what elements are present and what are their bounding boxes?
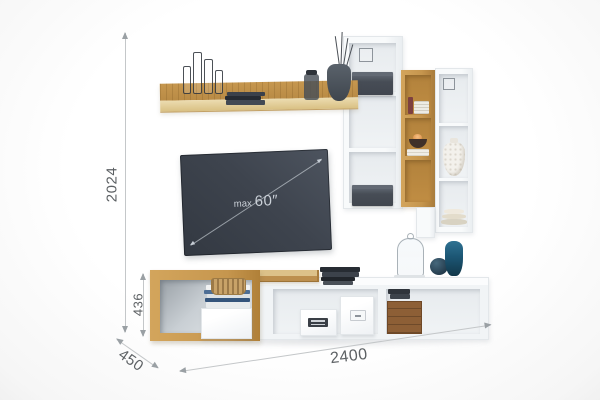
- glass-jar: [304, 74, 319, 100]
- wooden-crate: [387, 301, 422, 334]
- hanging-connector-panel: [416, 207, 435, 238]
- tv-max-text: max: [234, 198, 252, 210]
- vent-slot: [311, 324, 325, 326]
- shelf-unit-white-right: [435, 68, 473, 233]
- dimension-stand-height-label: 436: [131, 289, 146, 321]
- wire-tube: [193, 52, 202, 94]
- book: [390, 294, 410, 299]
- dimension-total-height-line: [125, 33, 126, 332]
- label-dash: [355, 315, 361, 317]
- plate-stack: [441, 209, 467, 225]
- arrow-down-right-icon: [151, 362, 160, 371]
- woven-basket: [211, 278, 246, 295]
- wire-tube: [215, 70, 223, 94]
- wire-candleholders: [183, 54, 223, 94]
- shelf-unit-oak: [401, 70, 435, 207]
- arrow-diagonal-icon: [317, 157, 323, 163]
- furniture-wall-unit-diagram: max60″: [0, 0, 600, 400]
- shelf-cell: [405, 160, 431, 202]
- dimension-total-height-label: 2024: [104, 161, 121, 209]
- label-holder: [350, 310, 366, 321]
- tall-blue-vase: [445, 241, 463, 276]
- arrow-down-icon: [140, 330, 146, 337]
- wire-tube: [204, 59, 213, 94]
- tv-screen: max60″: [180, 149, 332, 256]
- dark-book-stack: [225, 92, 265, 105]
- plate: [441, 219, 467, 225]
- vented-white-box: [300, 309, 337, 336]
- arrow-diagonal-icon: [189, 241, 195, 247]
- vase-neck: [450, 138, 458, 143]
- white-book-stack: [407, 149, 429, 156]
- crate-book-stack: [388, 289, 412, 299]
- cloche-base: [394, 275, 425, 278]
- storage-box: [352, 72, 393, 95]
- book: [323, 281, 353, 285]
- magazine-stack: [414, 101, 429, 114]
- dark-book-stack: [320, 267, 362, 285]
- tv-size-text: 60″: [254, 192, 278, 210]
- tv-size-label: max60″: [182, 190, 331, 214]
- arrow-up-icon: [140, 273, 146, 280]
- shelf-unit-white-left: [343, 36, 403, 209]
- white-storage-box: [201, 308, 252, 339]
- vent-slot: [311, 320, 325, 322]
- arrow-left-icon: [179, 367, 187, 374]
- glass-cloche: [397, 238, 424, 277]
- book: [226, 100, 265, 105]
- arrow-up-icon: [122, 32, 128, 39]
- vent-plate: [308, 318, 328, 327]
- label-white-box: [340, 296, 374, 335]
- red-book: [408, 97, 413, 114]
- wire-square-decor: [443, 78, 455, 90]
- wire-tube: [183, 66, 191, 94]
- glass-jar-lid: [306, 70, 317, 75]
- book: [206, 302, 250, 308]
- vase-with-branches: [327, 64, 351, 101]
- arrow-right-icon: [484, 321, 492, 328]
- storage-box: [352, 185, 393, 206]
- arrow-down-icon: [122, 326, 128, 333]
- wire-cube-decor: [359, 48, 373, 62]
